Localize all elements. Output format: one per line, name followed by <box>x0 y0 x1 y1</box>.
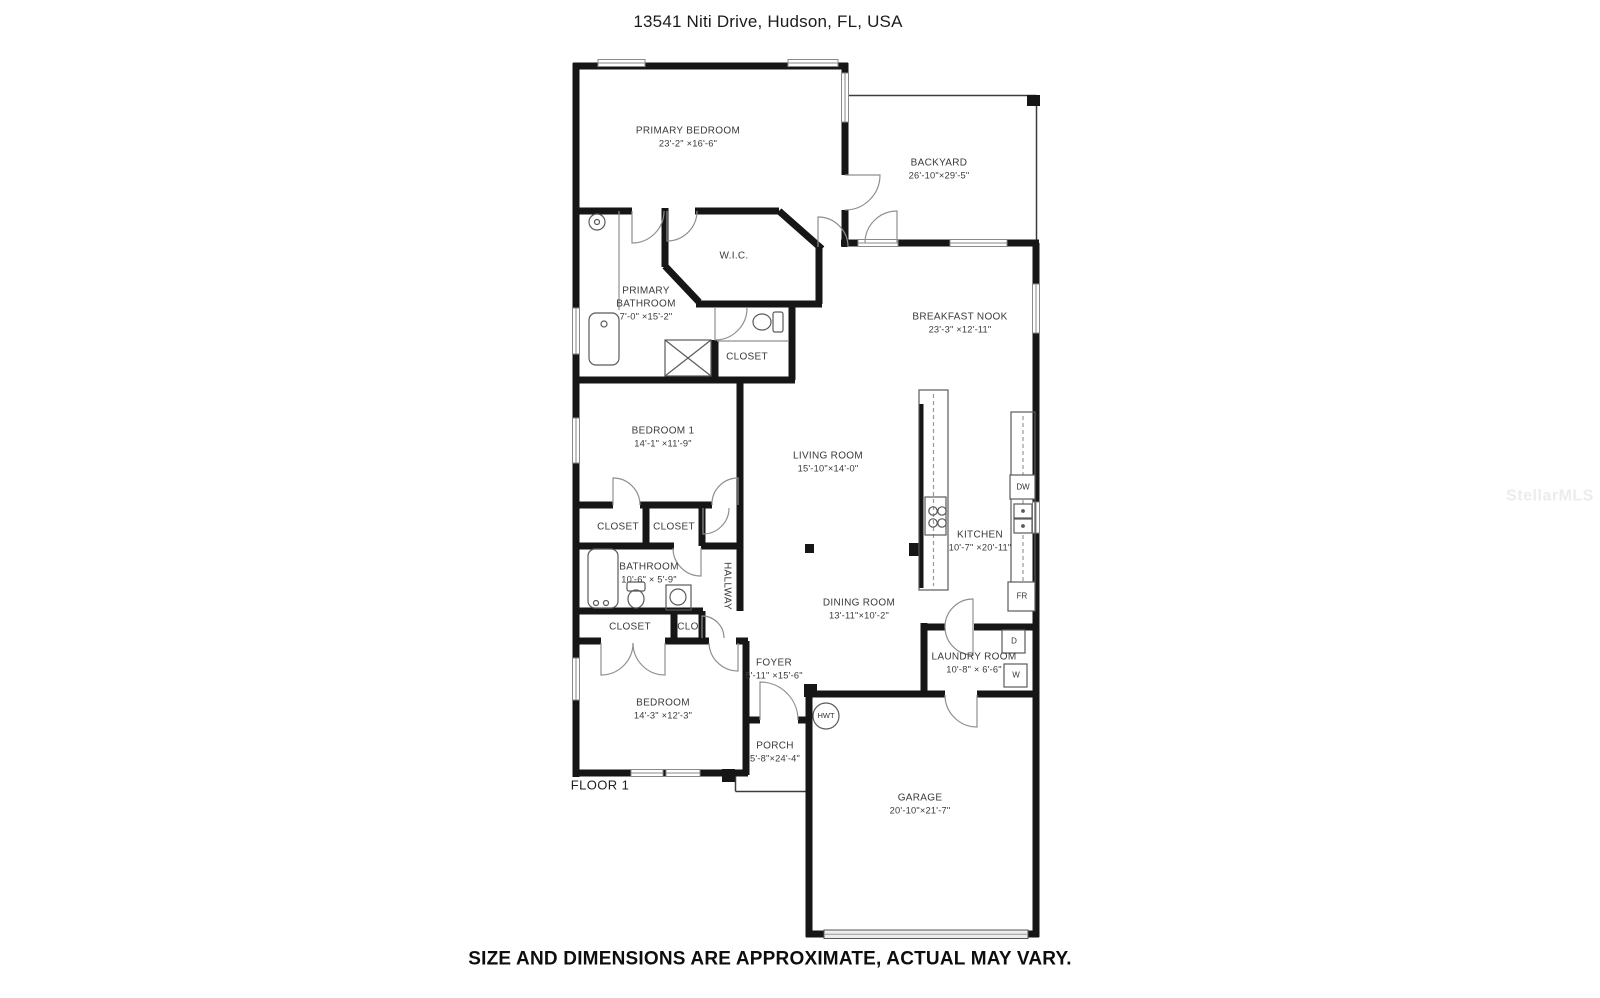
room-name: CLO <box>677 621 698 632</box>
shower-icon <box>665 340 711 376</box>
dryer-label: D <box>1011 637 1017 648</box>
room-label-bathroom: BATHROOM 10'-6" × 5'-9" <box>619 560 678 585</box>
floor-plan-drawing <box>0 0 1600 998</box>
room-name: KITCHEN <box>957 529 1003 540</box>
room-name: PRIMARY BEDROOM <box>636 125 740 136</box>
room-name: FOYER <box>756 657 792 668</box>
room-label-closet-primary: CLOSET <box>726 350 768 363</box>
room-label-wic: W.I.C. <box>719 249 748 262</box>
floor-label: FLOOR 1 <box>571 776 629 793</box>
room-label-bedroom-1: BEDROOM 1 14'-1" ×11'-9" <box>632 424 695 449</box>
room-dims: 13'-11"×10'-2" <box>823 609 895 621</box>
garage-door <box>824 930 1028 939</box>
room-dims: 10'-8" × 6'-6" <box>932 663 1017 675</box>
kitchen-counter <box>1008 412 1035 611</box>
room-dims: 20'-10"×21'-7" <box>890 804 951 816</box>
page-title: 13541 Niti Drive, Hudson, FL, USA <box>633 11 902 33</box>
room-name: PRIMARY BATHROOM <box>616 286 675 310</box>
disclaimer-text: SIZE AND DIMENSIONS ARE APPROXIMATE, ACT… <box>468 946 1072 971</box>
walls <box>573 63 1039 937</box>
room-dims: 5'-8"×24'-4" <box>750 752 800 764</box>
room-name: HALLWAY <box>722 562 733 610</box>
cooktop-icon <box>925 497 946 535</box>
room-name: CLOSET <box>597 521 639 532</box>
thin-outlines <box>736 96 1037 792</box>
room-dims: 23'-3" ×12'-11" <box>912 323 1007 335</box>
room-name: LAUNDRY ROOM <box>932 651 1017 662</box>
room-dims: 15'-10"×14'-0" <box>793 462 863 474</box>
floor-plan-page: 13541 Niti Drive, Hudson, FL, USA PRIMAR… <box>0 0 1600 998</box>
room-label-foyer: FOYER 5'-11" ×15'-6" <box>745 656 803 681</box>
room-name: BACKYARD <box>911 157 968 168</box>
kitchen-island <box>919 390 948 590</box>
room-dims: 23'-2" ×16'-6" <box>636 137 740 149</box>
room-dims: 10'-7" ×20'-11" <box>949 541 1012 553</box>
room-label-closet-b: CLOSET <box>653 520 695 533</box>
room-label-clo: CLO <box>677 620 698 633</box>
refrigerator-label: FR <box>1017 592 1028 603</box>
room-label-primary-bedroom: PRIMARY BEDROOM 23'-2" ×16'-6" <box>636 124 740 149</box>
room-label-closet-c: CLOSET <box>609 620 651 633</box>
room-label-laundry-room: LAUNDRY ROOM 10'-8" × 6'-6" <box>932 650 1017 675</box>
room-label-primary-bathroom: PRIMARY BATHROOM 7'-0" ×15'-2" <box>609 285 683 324</box>
room-name: BATHROOM <box>619 561 678 572</box>
room-dims: 14'-3" ×12'-3" <box>634 709 692 721</box>
room-name: LIVING ROOM <box>793 450 863 461</box>
room-name: BEDROOM <box>636 697 690 708</box>
room-label-bedroom-2: BEDROOM 14'-3" ×12'-3" <box>634 696 692 721</box>
room-label-kitchen: KITCHEN 10'-7" ×20'-11" <box>949 528 1012 553</box>
room-name: BREAKFAST NOOK <box>912 311 1007 322</box>
room-label-living-room: LIVING ROOM 15'-10"×14'-0" <box>793 449 863 474</box>
room-name: BEDROOM 1 <box>632 425 695 436</box>
room-name: GARAGE <box>898 792 943 803</box>
room-name: W.I.C. <box>719 250 748 261</box>
toilet2-icon <box>627 582 645 608</box>
room-label-backyard: BACKYARD 26'-10"×29'-5" <box>909 156 970 181</box>
bathtub2-icon <box>588 549 618 608</box>
room-dims: 14'-1" ×11'-9" <box>632 437 695 449</box>
pedestal-sink-icon <box>589 214 605 230</box>
room-label-dining-room: DINING ROOM 13'-11"×10'-2" <box>823 596 895 621</box>
sink-vanity-icon <box>666 585 691 610</box>
room-label-closet-a: CLOSET <box>597 520 639 533</box>
room-name: DINING ROOM <box>823 597 895 608</box>
room-label-hallway: HALLWAY <box>720 562 733 610</box>
room-name: CLOSET <box>609 621 651 632</box>
room-name: CLOSET <box>726 351 768 362</box>
toilet-icon <box>753 312 783 332</box>
watermark: StellarMLS <box>1506 485 1594 506</box>
kitchen-sink-icon <box>1014 504 1032 533</box>
dishwasher-label: DW <box>1016 483 1029 494</box>
room-label-breakfast-nook: BREAKFAST NOOK 23'-3" ×12'-11" <box>912 310 1007 335</box>
room-name: CLOSET <box>653 521 695 532</box>
room-dims: 7'-0" ×15'-2" <box>609 311 683 323</box>
room-name: PORCH <box>756 740 794 751</box>
room-dims: 26'-10"×29'-5" <box>909 169 970 181</box>
washer-label: W <box>1012 671 1020 682</box>
water-heater-label: HWT <box>817 711 834 721</box>
room-dims: 10'-6" × 5'-9" <box>619 573 678 585</box>
room-dims: 5'-11" ×15'-6" <box>745 669 803 681</box>
room-label-porch: PORCH 5'-8"×24'-4" <box>750 739 800 764</box>
room-label-garage: GARAGE 20'-10"×21'-7" <box>890 791 951 816</box>
